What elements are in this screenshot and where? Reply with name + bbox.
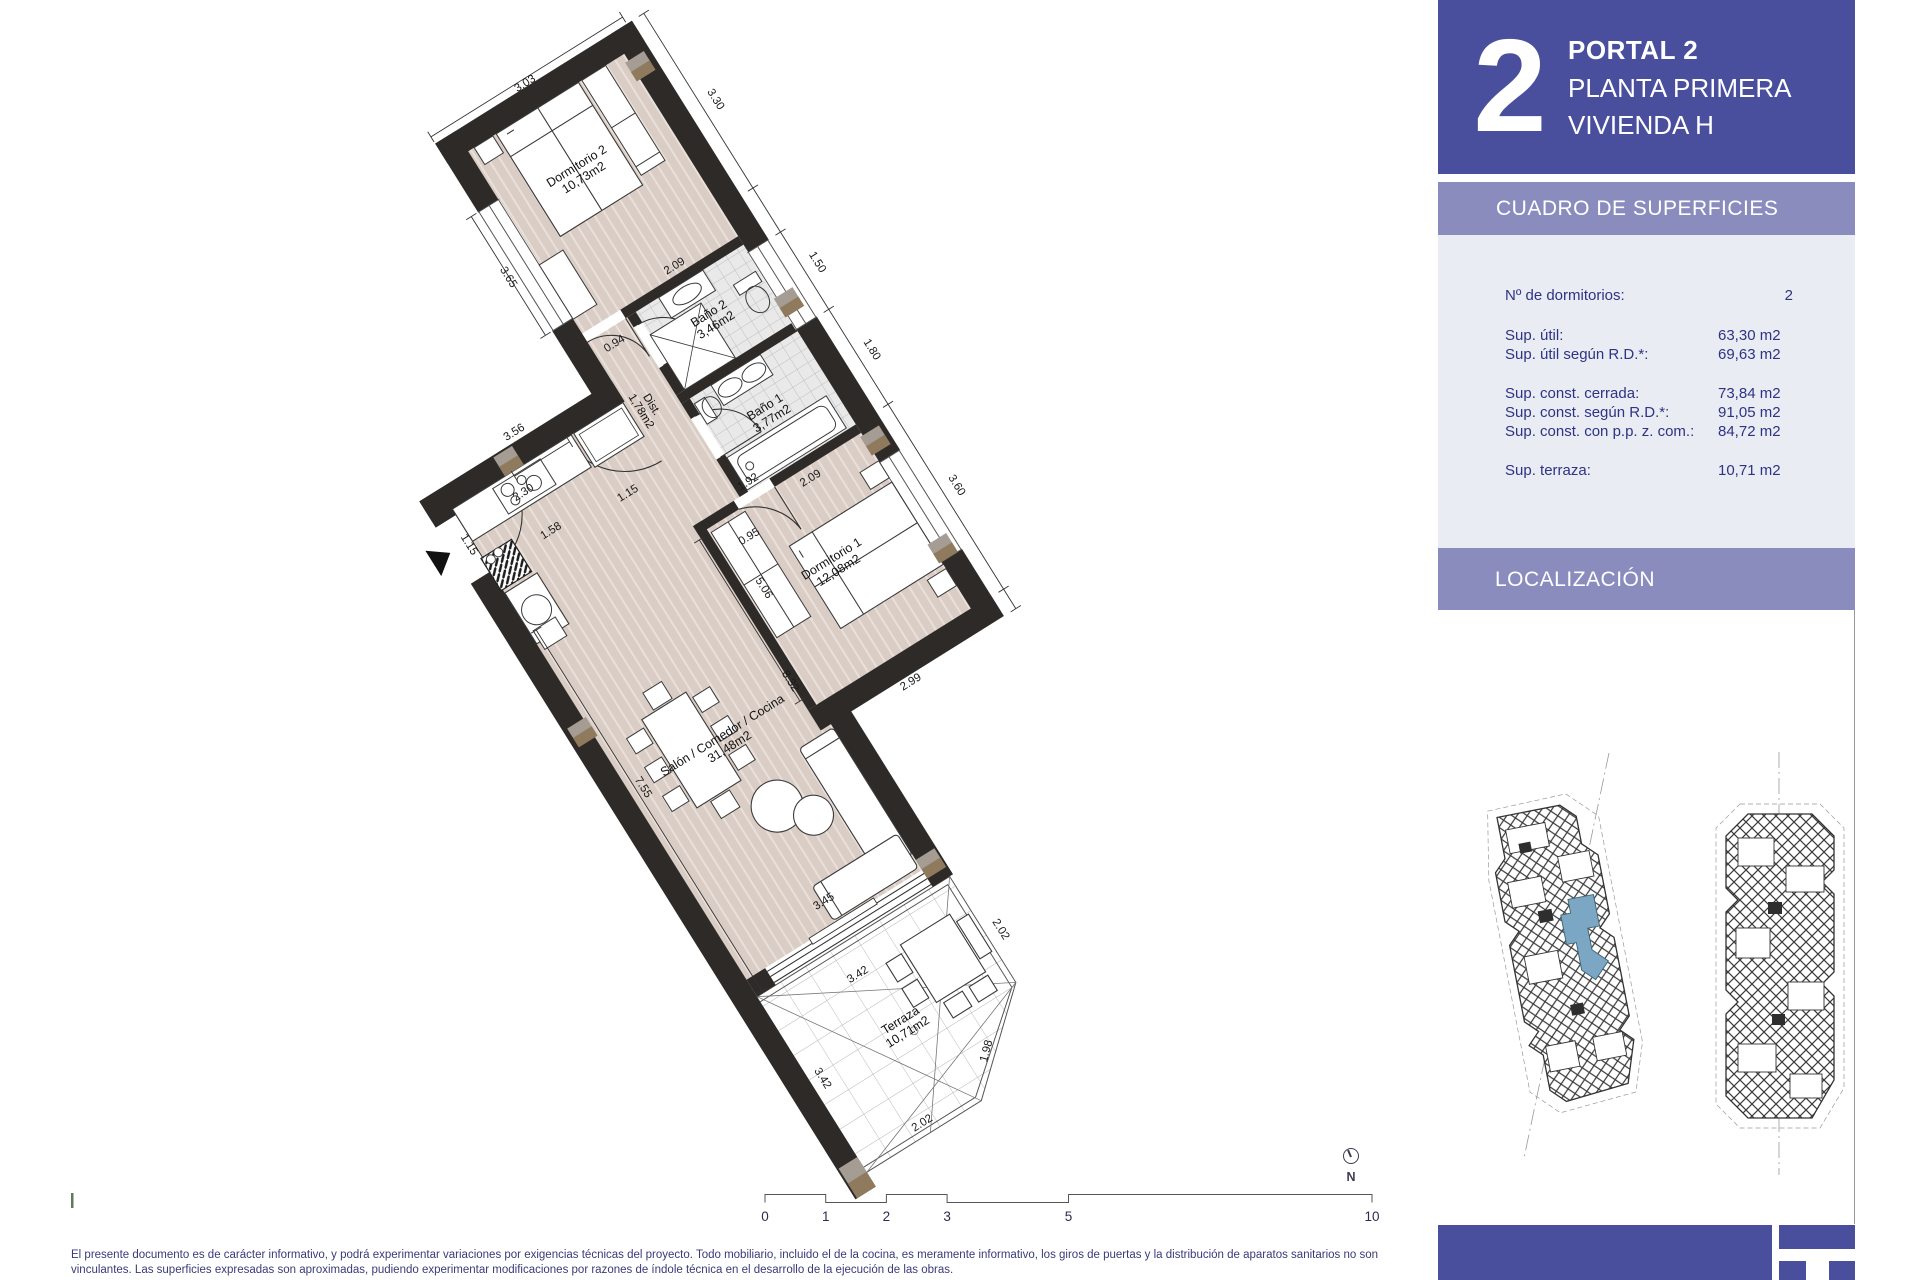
svg-text:0: 0 — [761, 1209, 769, 1224]
svg-text:1: 1 — [822, 1209, 830, 1224]
svg-text:3.30: 3.30 — [704, 87, 726, 112]
svg-text:10: 10 — [1364, 1209, 1379, 1224]
svg-text:5: 5 — [1065, 1209, 1073, 1224]
svg-text:1.80: 1.80 — [861, 337, 883, 362]
svg-text:3.60: 3.60 — [945, 473, 967, 498]
svg-text:2.02: 2.02 — [989, 917, 1011, 942]
svg-text:2: 2 — [883, 1209, 891, 1224]
svg-text:N: N — [1346, 1170, 1355, 1184]
svg-text:3: 3 — [943, 1209, 951, 1224]
svg-text:1.50: 1.50 — [806, 250, 828, 275]
